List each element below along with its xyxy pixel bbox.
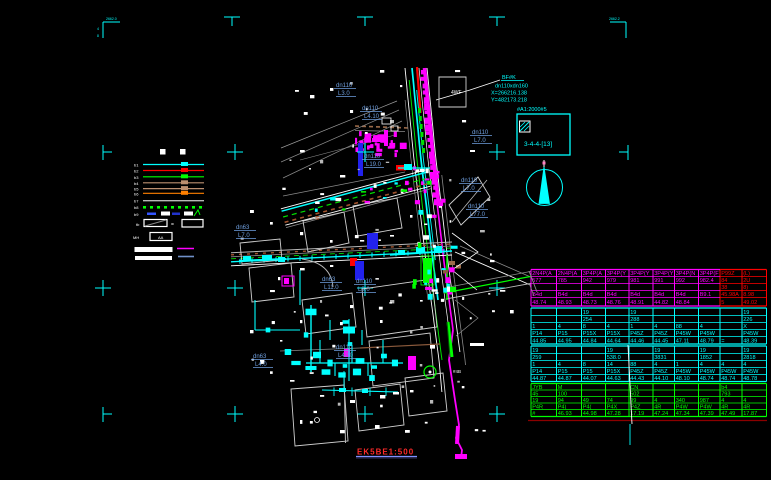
svg-text:48.10: 48.10 bbox=[676, 376, 690, 382]
svg-text:47.34: 47.34 bbox=[676, 411, 690, 417]
svg-text:b4: b4 bbox=[721, 385, 727, 391]
svg-text:4: 4 bbox=[700, 362, 703, 368]
svg-text:b6: b6 bbox=[134, 191, 139, 196]
svg-text:979: 979 bbox=[607, 278, 616, 284]
svg-text:981: 981 bbox=[630, 278, 639, 284]
svg-text:4R: 4R bbox=[743, 404, 750, 410]
svg-text:3-4-4-[13]: 3-4-4-[13] bbox=[524, 141, 552, 148]
svg-text:8: 8 bbox=[583, 324, 586, 330]
svg-text:dn110: dn110 bbox=[336, 345, 353, 351]
svg-text:226: 226 bbox=[743, 317, 752, 323]
svg-text:49: 49 bbox=[583, 398, 589, 404]
svg-text:(L): (L) bbox=[743, 271, 750, 277]
svg-text:P4X: P4X bbox=[607, 404, 618, 410]
svg-text:L11.0: L11.0 bbox=[324, 285, 339, 291]
svg-text:47.11: 47.11 bbox=[676, 338, 690, 344]
svg-text:17.19: 17.19 bbox=[630, 411, 644, 417]
svg-text:47.49: 47.49 bbox=[721, 411, 735, 417]
svg-text:4: 4 bbox=[558, 362, 561, 368]
svg-text:88: 88 bbox=[676, 324, 682, 330]
svg-text:P15X: P15X bbox=[607, 369, 621, 375]
svg-text:dn110: dn110 bbox=[461, 178, 478, 184]
svg-text:3831: 3831 bbox=[654, 355, 666, 361]
svg-text:dn110: dn110 bbox=[362, 106, 379, 112]
svg-text:=: = bbox=[721, 338, 724, 344]
svg-text:4: 4 bbox=[654, 362, 657, 368]
svg-text:88: 88 bbox=[630, 362, 636, 368]
svg-text:84: 84 bbox=[721, 278, 727, 284]
svg-text:L3.0: L3.0 bbox=[338, 91, 350, 97]
svg-text:P15: P15 bbox=[558, 331, 568, 337]
svg-text:992: 992 bbox=[676, 278, 685, 284]
svg-text:dn110xdn160: dn110xdn160 bbox=[495, 84, 528, 90]
svg-text:48.76: 48.76 bbox=[607, 300, 621, 306]
svg-text:P45Z: P45Z bbox=[630, 331, 644, 337]
svg-text:P45W: P45W bbox=[743, 369, 759, 375]
svg-text:4: 4 bbox=[97, 27, 99, 31]
svg-text:44.10: 44.10 bbox=[654, 376, 668, 382]
svg-text:44.45: 44.45 bbox=[654, 338, 668, 344]
svg-text:19: 19 bbox=[654, 348, 660, 354]
svg-text:48.91: 48.91 bbox=[630, 300, 644, 306]
svg-text:793: 793 bbox=[721, 391, 730, 397]
svg-text:47.28: 47.28 bbox=[607, 411, 621, 417]
svg-text:3P4P(Y: 3P4P(Y bbox=[654, 271, 674, 277]
svg-text:dn110: dn110 bbox=[336, 83, 353, 89]
svg-text:14: 14 bbox=[607, 362, 613, 368]
svg-text:4: 4 bbox=[721, 362, 724, 368]
svg-text:44.43: 44.43 bbox=[630, 376, 644, 382]
svg-text:44.85: 44.85 bbox=[532, 338, 546, 344]
svg-text:19: 19 bbox=[743, 310, 749, 316]
svg-text:4: 4 bbox=[721, 398, 724, 404]
svg-text:=: = bbox=[171, 222, 174, 228]
svg-text:P4R: P4R bbox=[532, 404, 543, 410]
svg-text:74: 74 bbox=[607, 398, 613, 404]
svg-text:48.84: 48.84 bbox=[676, 300, 690, 306]
svg-text:b7: b7 bbox=[134, 199, 139, 204]
svg-text:2818: 2818 bbox=[743, 355, 755, 361]
svg-text:B4d: B4d bbox=[676, 292, 686, 298]
svg-text:P15: P15 bbox=[558, 369, 568, 375]
svg-text:100: 100 bbox=[558, 391, 567, 397]
svg-text:#A1:2000#5: #A1:2000#5 bbox=[517, 107, 547, 113]
svg-text:b4: b4 bbox=[134, 181, 139, 186]
svg-text:P99Z: P99Z bbox=[721, 271, 735, 277]
svg-text:254: 254 bbox=[583, 317, 592, 323]
svg-text:4: 4 bbox=[558, 324, 561, 330]
svg-text:8.98: 8.98 bbox=[743, 292, 754, 298]
svg-text:2U: 2U bbox=[743, 278, 750, 284]
svg-text:46.93: 46.93 bbox=[558, 411, 572, 417]
svg-text:4: 4 bbox=[743, 398, 746, 404]
svg-text:987: 987 bbox=[700, 398, 709, 404]
svg-text:b9: b9 bbox=[134, 212, 139, 217]
svg-text:982.4: 982.4 bbox=[700, 278, 714, 284]
svg-text:M: M bbox=[558, 385, 563, 391]
svg-text:48.39: 48.39 bbox=[743, 338, 757, 344]
svg-text:288: 288 bbox=[630, 317, 639, 323]
svg-text:L7.0: L7.0 bbox=[463, 186, 475, 192]
svg-text:P45W: P45W bbox=[743, 331, 759, 337]
svg-text:259: 259 bbox=[532, 355, 541, 361]
svg-text:P4): P4) bbox=[558, 404, 567, 410]
svg-text:AA: AA bbox=[158, 235, 164, 240]
svg-text:45.98A: 45.98A bbox=[721, 292, 739, 298]
svg-text:4: 4 bbox=[743, 362, 746, 368]
svg-text:3P4P(Y: 3P4P(Y bbox=[630, 271, 650, 277]
svg-text:48.78: 48.78 bbox=[743, 376, 757, 382]
svg-text:1: 1 bbox=[532, 362, 535, 368]
svg-text:P15: P15 bbox=[583, 369, 593, 375]
svg-text:3P4P(F: 3P4P(F bbox=[700, 271, 720, 277]
svg-text:44.63: 44.63 bbox=[607, 376, 621, 382]
svg-text:19: 19 bbox=[700, 348, 706, 354]
svg-text:1852: 1852 bbox=[700, 355, 712, 361]
svg-text:8: 8 bbox=[583, 362, 586, 368]
svg-text:19: 19 bbox=[743, 348, 749, 354]
svg-text:44.46: 44.46 bbox=[630, 338, 644, 344]
svg-text:5: 5 bbox=[721, 300, 724, 306]
svg-text:47.24: 47.24 bbox=[654, 411, 668, 417]
svg-text:P45W: P45W bbox=[721, 369, 737, 375]
svg-text:b2: b2 bbox=[134, 169, 139, 174]
svg-text:3P4P(N: 3P4P(N bbox=[676, 271, 696, 277]
svg-text:4: 4 bbox=[607, 324, 610, 330]
svg-text:48.73: 48.73 bbox=[583, 300, 597, 306]
svg-text:48.74: 48.74 bbox=[700, 376, 714, 382]
svg-text:L7.0: L7.0 bbox=[474, 138, 486, 144]
svg-text:1: 1 bbox=[676, 362, 679, 368]
svg-text:Y=482173.218: Y=482173.218 bbox=[491, 98, 527, 104]
svg-text:942: 942 bbox=[583, 278, 592, 284]
svg-text:P45W: P45W bbox=[676, 369, 692, 375]
svg-text:dn110: dn110 bbox=[468, 204, 485, 210]
svg-text:3P4P(A: 3P4P(A bbox=[583, 271, 603, 277]
svg-text:44.98: 44.98 bbox=[583, 411, 597, 417]
svg-text:P45Z: P45Z bbox=[630, 369, 644, 375]
svg-text:2662.2: 2662.2 bbox=[609, 17, 620, 21]
svg-text:X=266216.138: X=266216.138 bbox=[491, 91, 527, 97]
svg-text:3P4P(Y: 3P4P(Y bbox=[607, 271, 627, 277]
svg-text:B4d: B4d bbox=[583, 292, 593, 298]
svg-text:48.74: 48.74 bbox=[532, 300, 546, 306]
svg-text:B4d: B4d bbox=[607, 292, 617, 298]
svg-text:49.02: 49.02 bbox=[743, 300, 757, 306]
svg-text:4R: 4R bbox=[721, 404, 728, 410]
svg-text:94: 94 bbox=[558, 398, 564, 404]
svg-text:JYB: JYB bbox=[532, 385, 543, 391]
svg-text:340: 340 bbox=[676, 398, 685, 404]
svg-text:dn63: dn63 bbox=[322, 277, 336, 283]
svg-text:dn110: dn110 bbox=[472, 130, 489, 136]
svg-text:785: 785 bbox=[558, 278, 567, 284]
svg-text:b1: b1 bbox=[134, 163, 139, 168]
svg-text:L42.0: L42.0 bbox=[338, 353, 354, 359]
svg-text:538.0: 538.0 bbox=[607, 355, 621, 361]
svg-text:44.07: 44.07 bbox=[583, 376, 597, 382]
svg-text:38: 38 bbox=[721, 285, 727, 291]
svg-text:44.87: 44.87 bbox=[532, 376, 546, 382]
svg-text:4: 4 bbox=[654, 324, 657, 330]
svg-text:991: 991 bbox=[654, 278, 663, 284]
svg-text:44.95: 44.95 bbox=[558, 338, 572, 344]
svg-text:19: 19 bbox=[607, 348, 613, 354]
svg-text:2662.0: 2662.0 bbox=[106, 17, 117, 21]
svg-text:B9.1: B9.1 bbox=[700, 292, 712, 298]
svg-text:19: 19 bbox=[630, 310, 636, 316]
svg-text:48.74: 48.74 bbox=[721, 376, 735, 382]
svg-text:44.64: 44.64 bbox=[607, 338, 621, 344]
svg-text:dn110: dn110 bbox=[364, 154, 381, 160]
svg-text:47.39: 47.39 bbox=[700, 411, 714, 417]
svg-text:P45W: P45W bbox=[676, 331, 692, 337]
svg-text:L77.0: L77.0 bbox=[470, 212, 486, 218]
svg-text:P45Z: P45Z bbox=[654, 331, 668, 337]
svg-text:48.79: 48.79 bbox=[700, 338, 714, 344]
svg-text:dn110: dn110 bbox=[356, 279, 373, 285]
svg-text:4: 4 bbox=[654, 398, 657, 404]
svg-text:P45W: P45W bbox=[700, 369, 716, 375]
svg-text:45: 45 bbox=[532, 391, 538, 397]
svg-text:17.87: 17.87 bbox=[743, 411, 757, 417]
svg-text:B4d: B4d bbox=[630, 292, 640, 298]
svg-text:19: 19 bbox=[532, 398, 538, 404]
svg-text:L19.0: L19.0 bbox=[366, 162, 382, 168]
svg-text:MH: MH bbox=[133, 235, 139, 240]
svg-text:B4d: B4d bbox=[558, 292, 568, 298]
svg-text:2N4P(A: 2N4P(A bbox=[532, 271, 552, 277]
svg-text:19: 19 bbox=[532, 348, 538, 354]
svg-text:B4d: B4d bbox=[654, 292, 664, 298]
svg-text:44.87: 44.87 bbox=[558, 376, 572, 382]
svg-text:EK5BE1:500: EK5BE1:500 bbox=[357, 448, 414, 457]
svg-text:L7.0: L7.0 bbox=[238, 233, 250, 239]
svg-text:b8: b8 bbox=[134, 205, 139, 210]
svg-text:8: 8 bbox=[97, 34, 99, 38]
svg-text:1: 1 bbox=[532, 324, 535, 330]
svg-text:P45W: P45W bbox=[700, 331, 716, 337]
svg-text:dn63: dn63 bbox=[253, 354, 267, 360]
svg-text:P14: P14 bbox=[532, 369, 542, 375]
svg-text:44.82: 44.82 bbox=[654, 300, 668, 306]
svg-text:P14: P14 bbox=[532, 331, 542, 337]
svg-text:P45Z: P45Z bbox=[654, 369, 668, 375]
svg-text:P4Z: P4Z bbox=[630, 404, 641, 410]
svg-text:#4B: #4B bbox=[453, 369, 461, 374]
svg-text:1: 1 bbox=[630, 324, 633, 330]
svg-text:4: 4 bbox=[700, 324, 703, 330]
svg-text:L4.0: L4.0 bbox=[255, 362, 267, 368]
svg-text:P4W: P4W bbox=[676, 404, 689, 410]
svg-text:P15X: P15X bbox=[607, 331, 621, 337]
svg-text:8): 8) bbox=[743, 285, 748, 291]
svg-text:4WF: 4WF bbox=[451, 90, 462, 96]
svg-text:19: 19 bbox=[583, 310, 589, 316]
svg-text:502: 502 bbox=[630, 391, 639, 397]
svg-text:L4.10: L4.10 bbox=[364, 114, 380, 120]
svg-text:P4W: P4W bbox=[700, 404, 713, 410]
svg-text:b3: b3 bbox=[134, 175, 139, 180]
svg-text:4R: 4R bbox=[654, 404, 661, 410]
svg-text:48.93: 48.93 bbox=[558, 300, 572, 306]
svg-text:CN: CN bbox=[630, 385, 638, 391]
svg-text:2N4P(A: 2N4P(A bbox=[558, 271, 578, 277]
svg-text:P4(: P4( bbox=[583, 404, 592, 410]
svg-text:X: X bbox=[743, 324, 747, 330]
svg-text:44.84: 44.84 bbox=[583, 338, 597, 344]
svg-text:P15X: P15X bbox=[583, 331, 597, 337]
svg-text:dn63: dn63 bbox=[236, 225, 250, 231]
svg-text:L3.0: L3.0 bbox=[358, 287, 370, 293]
